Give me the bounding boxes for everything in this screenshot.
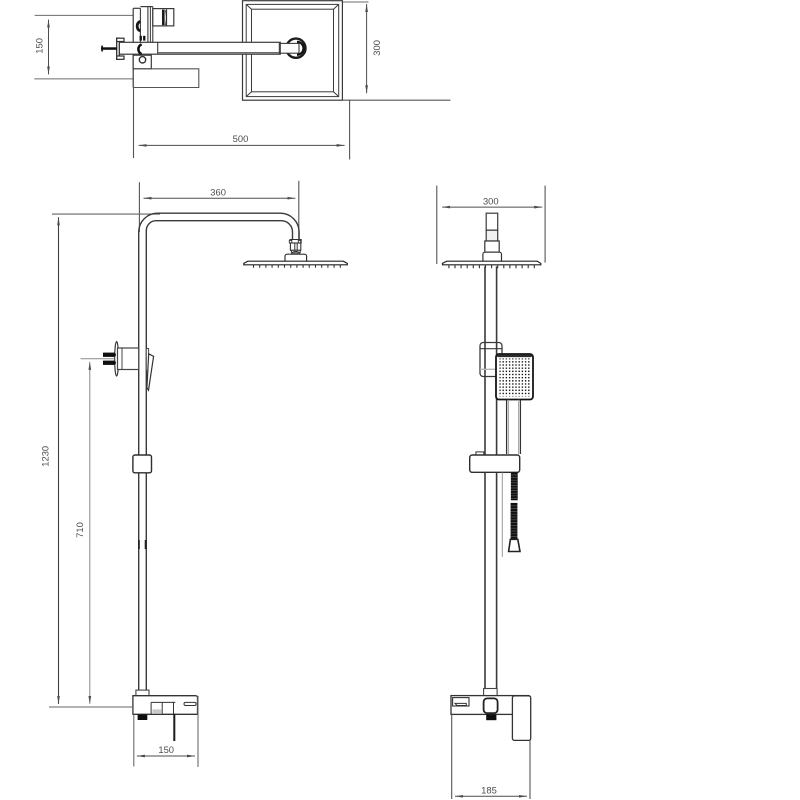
svg-text:150: 150 (158, 744, 174, 755)
svg-text:500: 500 (233, 133, 249, 144)
svg-text:360: 360 (210, 186, 226, 197)
svg-text:710: 710 (74, 522, 85, 538)
svg-text:300: 300 (371, 40, 382, 56)
svg-text:185: 185 (481, 785, 497, 796)
svg-text:150: 150 (34, 38, 45, 54)
svg-text:300: 300 (483, 195, 499, 206)
svg-text:1230: 1230 (40, 446, 51, 467)
